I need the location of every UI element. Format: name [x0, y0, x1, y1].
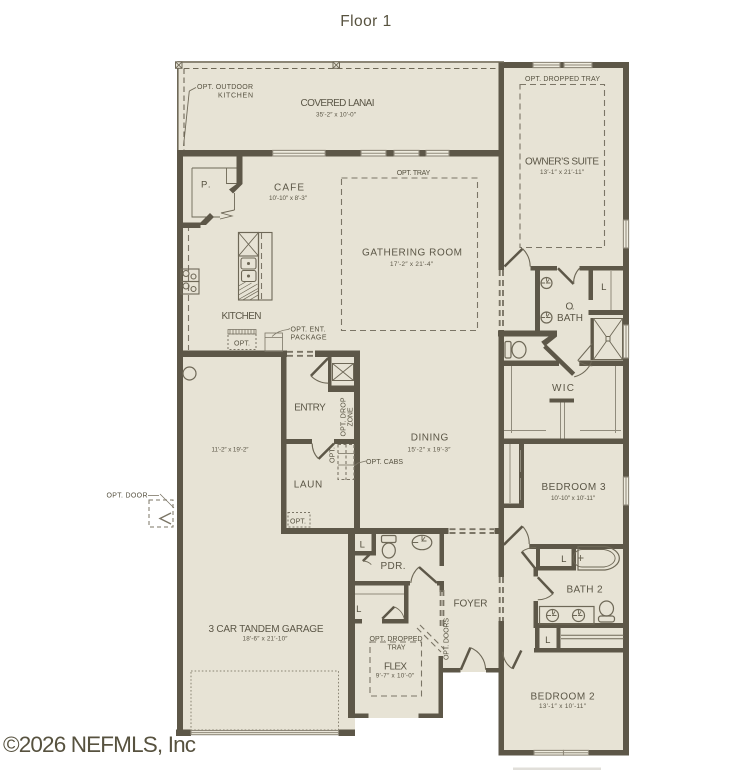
- svg-text:BATH: BATH: [557, 313, 583, 324]
- svg-text:FOYER: FOYER: [454, 599, 488, 610]
- svg-text:OWNER’S SUITE: OWNER’S SUITE: [525, 157, 599, 168]
- svg-text:OPT. TRAY: OPT. TRAY: [397, 170, 431, 177]
- svg-text:17′-2″ x 21′-4″: 17′-2″ x 21′-4″: [390, 261, 434, 268]
- svg-text:L: L: [545, 635, 551, 646]
- svg-text:PACKAGE: PACKAGE: [291, 335, 327, 342]
- svg-text:13′-1″ x 21′-11″: 13′-1″ x 21′-11″: [540, 169, 585, 176]
- svg-text:Floor 1: Floor 1: [340, 13, 391, 30]
- svg-text:FLEX: FLEX: [384, 662, 407, 673]
- svg-text:3 CAR TANDEM GARAGE: 3 CAR TANDEM GARAGE: [209, 624, 324, 635]
- svg-text:ENTRY: ENTRY: [294, 403, 326, 414]
- svg-text:9′-7″ x 10′-0″: 9′-7″ x 10′-0″: [376, 673, 415, 680]
- svg-text:18′-6″ x 21′-10″: 18′-6″ x 21′-10″: [243, 636, 289, 643]
- svg-text:DINING: DINING: [411, 433, 449, 444]
- svg-text:GATHERING ROOM: GATHERING ROOM: [362, 248, 462, 259]
- svg-text:OPT.: OPT.: [290, 519, 306, 526]
- svg-text:OPT. OUTDOOR: OPT. OUTDOOR: [197, 84, 253, 91]
- svg-text:15′-2″ x 19′-3″: 15′-2″ x 19′-3″: [408, 447, 452, 454]
- svg-text:P.: P.: [201, 180, 211, 191]
- svg-text:OPT. CABS: OPT. CABS: [366, 459, 403, 466]
- svg-text:COVERED LANAI: COVERED LANAI: [301, 98, 375, 109]
- svg-text:10′-10″ x 10′-11″: 10′-10″ x 10′-11″: [551, 495, 596, 502]
- svg-text:ZONE: ZONE: [347, 407, 354, 426]
- svg-text:TRAY: TRAY: [388, 645, 406, 652]
- svg-text:O.: O.: [566, 302, 575, 313]
- svg-text:OPT. DROPPED TRAY: OPT. DROPPED TRAY: [525, 76, 600, 83]
- svg-text:OPT.: OPT.: [330, 447, 337, 463]
- svg-text:BATH 2: BATH 2: [567, 585, 603, 596]
- svg-text:35′-2″ x 10′-0″: 35′-2″ x 10′-0″: [316, 112, 357, 119]
- svg-text:13′-1″ x 10′-11″: 13′-1″ x 10′-11″: [539, 703, 587, 710]
- svg-text:KITCHEN: KITCHEN: [222, 311, 262, 322]
- svg-text:L: L: [561, 554, 567, 565]
- svg-text:L: L: [360, 540, 366, 551]
- svg-text:OPT. ENT.: OPT. ENT.: [291, 327, 326, 334]
- svg-text:OPT. DOORS: OPT. DOORS: [444, 618, 451, 660]
- svg-text:10′-10″ x 8′-3″: 10′-10″ x 8′-3″: [269, 195, 308, 202]
- svg-text:LAUN: LAUN: [294, 480, 323, 491]
- svg-text:OPT.: OPT.: [234, 341, 250, 348]
- svg-text:OPT. DOOR: OPT. DOOR: [107, 493, 148, 500]
- svg-text:©2026 NEFMLS, Inc: ©2026 NEFMLS, Inc: [3, 732, 196, 757]
- svg-text:PDR.: PDR.: [381, 561, 406, 572]
- svg-text:11′-2″ x 19′-2″: 11′-2″ x 19′-2″: [212, 446, 250, 453]
- svg-text:BEDROOM 2: BEDROOM 2: [531, 692, 595, 703]
- svg-text:OPT. DROPPED: OPT. DROPPED: [370, 636, 423, 643]
- svg-text:CAFE: CAFE: [274, 183, 304, 194]
- svg-text:KITCHEN: KITCHEN: [218, 93, 253, 100]
- svg-text:BEDROOM 3: BEDROOM 3: [542, 482, 606, 493]
- svg-text:L: L: [601, 282, 607, 293]
- svg-text:L: L: [356, 604, 362, 615]
- svg-text:WIC: WIC: [552, 383, 574, 394]
